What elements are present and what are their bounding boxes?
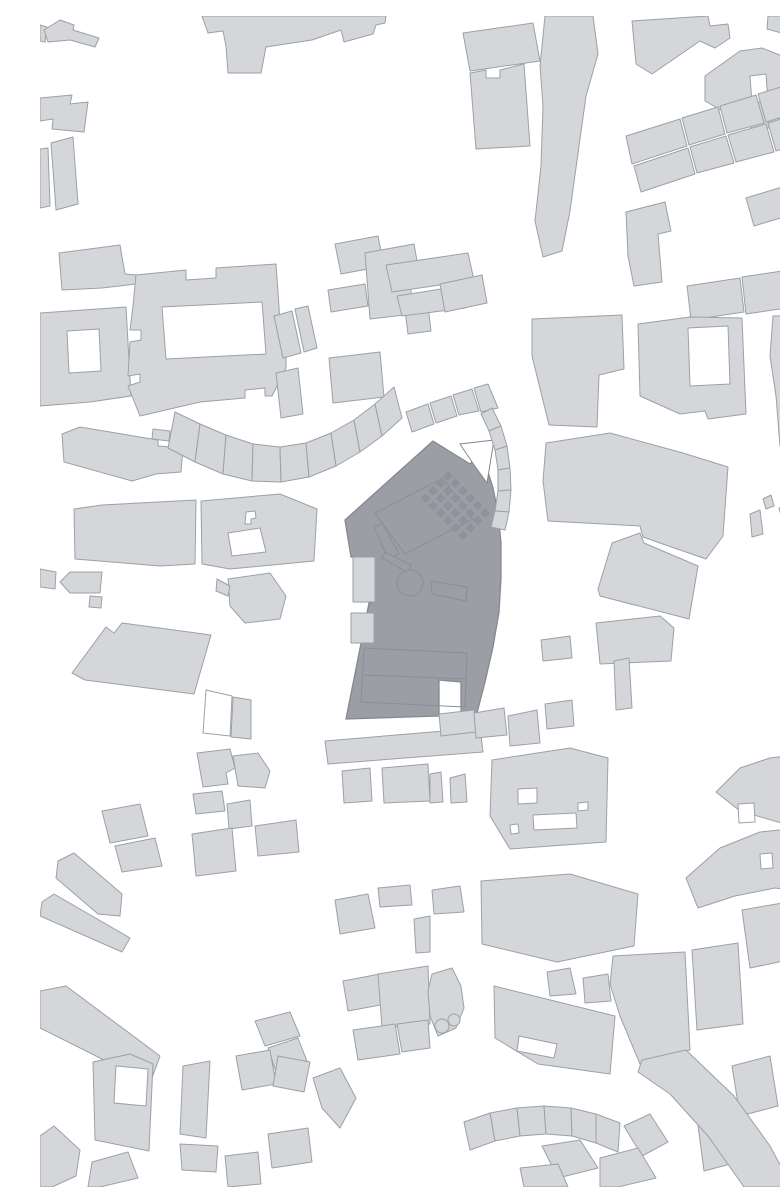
building	[378, 885, 412, 907]
building	[255, 820, 299, 856]
courtyard-hole	[67, 329, 101, 373]
building	[687, 278, 744, 320]
row-house	[252, 444, 281, 482]
building	[541, 636, 572, 661]
building	[180, 1061, 210, 1138]
building	[268, 1128, 312, 1168]
building	[432, 886, 464, 914]
building	[545, 700, 574, 729]
building	[51, 137, 78, 210]
building	[481, 874, 638, 962]
building	[102, 804, 148, 843]
building	[692, 943, 743, 1030]
building	[40, 148, 50, 208]
building	[231, 697, 251, 739]
building	[742, 269, 780, 314]
row-house	[490, 1108, 520, 1141]
courtyard-hole	[518, 788, 537, 804]
building	[490, 748, 608, 849]
building	[276, 368, 303, 418]
building	[353, 1024, 400, 1060]
row-house	[517, 1106, 546, 1136]
figure-ground-map	[40, 16, 780, 1187]
building	[353, 557, 375, 602]
building	[40, 569, 56, 589]
building	[74, 500, 196, 566]
building	[342, 768, 372, 803]
building	[414, 916, 430, 953]
row-house	[498, 468, 511, 491]
courtyard-hole	[738, 803, 755, 823]
map-canvas	[40, 16, 780, 1187]
building	[470, 64, 530, 149]
building	[596, 616, 674, 664]
courtyard-hole	[688, 326, 730, 386]
building	[397, 1020, 430, 1052]
building	[236, 1050, 276, 1090]
building	[273, 1056, 310, 1092]
building	[430, 772, 443, 803]
unbuilt-parcel	[203, 690, 232, 736]
building	[335, 894, 375, 934]
courtyard-hole	[228, 528, 266, 556]
apse-lobe	[435, 1019, 449, 1033]
row-house	[544, 1106, 572, 1136]
building	[225, 1152, 261, 1187]
building	[192, 828, 236, 876]
building	[152, 429, 170, 441]
courtyard-hole	[533, 813, 577, 830]
building	[180, 1144, 218, 1172]
row-house	[495, 446, 510, 470]
building	[89, 596, 102, 608]
building	[227, 800, 252, 829]
apse-lobe	[448, 1014, 460, 1026]
row-house	[495, 490, 511, 512]
building	[439, 710, 476, 736]
courtyard-hole	[760, 853, 773, 869]
courtyard-hole	[162, 302, 266, 359]
building	[474, 708, 507, 738]
building	[351, 613, 374, 643]
building	[583, 974, 611, 1003]
building	[378, 966, 430, 1028]
courtyard-hole	[510, 824, 519, 834]
building	[329, 352, 384, 403]
building	[614, 658, 632, 710]
building	[382, 764, 430, 803]
courtyard-hole	[114, 1066, 148, 1106]
building	[450, 774, 467, 803]
circular-court	[397, 570, 423, 596]
row-house	[280, 443, 309, 482]
building	[193, 791, 225, 814]
courtyard-hole	[578, 802, 588, 811]
building	[508, 710, 540, 746]
